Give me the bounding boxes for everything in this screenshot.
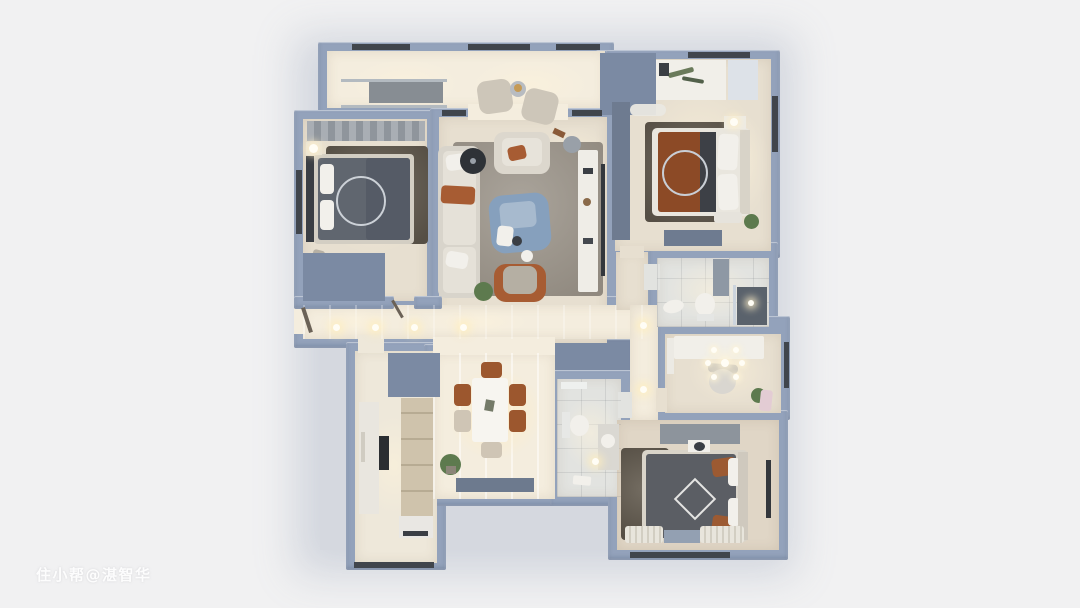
- desk-study: [674, 336, 764, 359]
- dining-chair-west-2: [454, 410, 471, 432]
- drying-rack-rail-bottom: [341, 105, 447, 108]
- glow-hall-1: [315, 308, 395, 336]
- closet-master-left: [612, 102, 630, 240]
- closet-block-bedroom-left: [303, 253, 385, 301]
- light-hall-3: [411, 324, 418, 331]
- toilet-ensuite-bowl: [695, 293, 715, 316]
- mirror-guest-bath: [561, 382, 587, 389]
- sputnik-bulb-1: [711, 347, 717, 353]
- chair-study: [709, 369, 736, 394]
- light-hall-1: [333, 324, 340, 331]
- cabinet-ensuite: [713, 259, 729, 296]
- lamp-master: [730, 118, 738, 126]
- dining-table-decor: [484, 399, 495, 411]
- console-decor-2: [583, 198, 591, 206]
- wardrobe-bedroom-left: [307, 121, 425, 141]
- window-master-top: [688, 52, 750, 58]
- light-ensuite: [748, 300, 754, 306]
- window-master-right: [772, 96, 778, 152]
- bed-master-wreath-decor: [662, 150, 708, 196]
- bed-left-headboard: [306, 156, 314, 242]
- plant-dining-pot: [446, 466, 456, 474]
- sofa-cushion-2: [443, 199, 476, 245]
- kids-crib: [496, 225, 514, 247]
- mat-study: [759, 389, 773, 411]
- dining-chair-south: [481, 442, 502, 458]
- sputnik-bulb-4: [739, 360, 745, 366]
- window-living-balcony-2: [572, 110, 602, 116]
- window-bedroom-left: [296, 170, 302, 234]
- kitchen-top-block: [388, 353, 440, 397]
- bed-master-pillow-1: [717, 134, 739, 171]
- wardrobe-art-dark-item: [659, 63, 669, 76]
- glow-hall-2: [420, 308, 530, 336]
- kid-stool: [521, 250, 533, 262]
- window-bedroom-second: [630, 552, 730, 558]
- shower-ensuite: [737, 287, 767, 325]
- kitchen-unit-dark: [403, 531, 428, 536]
- light-hall-2: [372, 324, 379, 331]
- dining-chair-east-2: [509, 410, 526, 432]
- sputnik-light-center: [721, 359, 729, 367]
- curtain-master-ne: [728, 60, 758, 100]
- sputnik-bulb-3: [705, 360, 711, 366]
- window-balcony-1: [352, 44, 410, 50]
- bed-master-pillow-2: [717, 174, 739, 211]
- balcony-kettle: [514, 84, 522, 92]
- mat-guest-bath: [573, 475, 592, 486]
- dining-chair-east-1: [509, 384, 526, 406]
- window-kitchen: [354, 562, 434, 568]
- window-seat-bench: [664, 530, 700, 543]
- window-seat-cushion-2: [700, 526, 744, 543]
- toilet-guest-tank: [562, 412, 570, 438]
- light-corridor-2: [640, 386, 647, 393]
- kitchen-cooktop: [379, 436, 389, 470]
- opening-master-door: [620, 246, 644, 258]
- sideboard-dining: [456, 478, 534, 492]
- bench-master: [714, 212, 742, 223]
- fluffy-rug-master: [630, 104, 666, 116]
- tv-panel-living: [601, 164, 605, 276]
- tv-panel-bedroom-second: [766, 460, 771, 518]
- record-player-center: [470, 158, 476, 164]
- light-corridor-1: [640, 322, 647, 329]
- lounge-chair-left: [476, 78, 514, 115]
- shelf-study: [667, 338, 674, 374]
- sink-guest-bath: [601, 434, 615, 448]
- tv-unit-master: [664, 230, 722, 246]
- lamp-bedroom-left: [309, 144, 318, 153]
- sofa-throw-rust: [441, 185, 476, 205]
- toilet-guest-bowl: [570, 415, 589, 436]
- bed-left-pillow-2: [320, 200, 334, 230]
- window-balcony-2: [468, 44, 530, 50]
- bed-master-headboard: [740, 130, 750, 214]
- dining-chair-north: [481, 362, 502, 378]
- opening-study-door: [656, 388, 667, 412]
- watermark: 住小帮@湛智华: [36, 564, 152, 585]
- light-guest-bath: [592, 458, 599, 465]
- light-hall-4: [460, 324, 467, 331]
- plant-living: [474, 282, 493, 301]
- kitchen-counter-niche: [361, 432, 365, 462]
- plant-master: [744, 214, 759, 229]
- console-decor-3: [583, 238, 593, 244]
- floorplan-render: [0, 0, 1080, 608]
- sputnik-bulb-2: [733, 347, 739, 353]
- sputnik-bulb-6: [733, 374, 739, 380]
- kitchen-cabinets-right: [401, 398, 433, 516]
- toilet-ensuite-tank: [697, 314, 714, 321]
- bed-left-pillow-1: [320, 164, 334, 194]
- shower-glass-ensuite: [733, 285, 736, 325]
- console-decor-1: [583, 168, 593, 174]
- window-balcony-3: [556, 44, 600, 50]
- page: { "watermark": "住小帮@湛智华", "palette": { "…: [0, 0, 1080, 608]
- dining-chair-west-1: [454, 384, 471, 406]
- window-living-balcony-1: [442, 110, 466, 116]
- accent-chair-cushion: [503, 266, 537, 294]
- drying-rack-panel: [369, 82, 443, 103]
- window-study-right: [784, 342, 789, 388]
- sputnik-bulb-5: [711, 374, 717, 380]
- bed-left-wreath-decor: [336, 176, 386, 226]
- window-seat-cushion-1: [625, 526, 663, 543]
- basket-living: [563, 136, 581, 153]
- kids-toy: [512, 236, 522, 246]
- decor-arc-bedroom-second: [694, 442, 705, 451]
